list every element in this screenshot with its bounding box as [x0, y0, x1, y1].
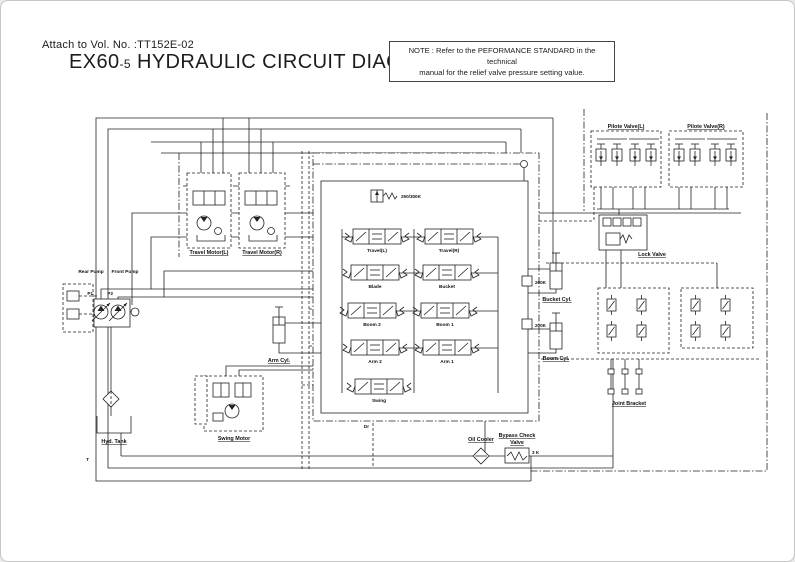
port-t-label: T — [86, 457, 89, 462]
cushion-valve-block-2 — [681, 288, 753, 348]
port-p1-label: P1 — [87, 291, 93, 296]
arm-cylinder-label: Arm Cyl. — [268, 358, 291, 364]
bucket-cylinder-label: Bucket Cyl. — [542, 297, 572, 303]
travel-motor-right-label: Travel Motor(R) — [242, 250, 282, 256]
spool-boom1-label: Boom 1 — [436, 322, 454, 328]
spool-arm1 — [415, 340, 479, 355]
travel-motor-right-symbol — [250, 216, 264, 230]
hydraulic-circuit-diagram: Travel Motor(L) Travel Motor(R) Rear Pum… — [1, 1, 795, 562]
joint-link — [622, 369, 628, 394]
pilot-valve-left-block: Pilote Valve(L) — [591, 124, 661, 187]
rear-pump-label: Rear Pump — [78, 269, 103, 275]
swing-motor-label: Swing Motor — [218, 436, 251, 442]
pilot-valve-right-block: Pilote Valve(R) — [669, 124, 743, 187]
joint-bracket-block: Joint Bracket — [608, 369, 646, 407]
spool-swing-label: Swing — [372, 398, 386, 404]
spool-travel-left-label: Travel(L) — [367, 248, 387, 254]
port-relief-setting-2: 200K — [535, 323, 547, 328]
port-p2-label: P2 — [107, 291, 113, 296]
spool-arm2-label: Arm 2 — [368, 359, 382, 365]
swing-motor-symbol — [225, 404, 239, 418]
pilot-valve-right-label: Pilote Valve(R) — [687, 124, 725, 130]
pilot-valve-left-label: Pilote Valve(L) — [608, 124, 645, 130]
spool-arm2 — [343, 340, 407, 355]
boom-cylinder-label: Boom Cyl. — [543, 356, 570, 362]
spool-arm1-label: Arm 1 — [440, 359, 454, 365]
spool-travel-right — [417, 229, 481, 244]
spool-bucket — [415, 265, 479, 280]
port-dr-label: Dr — [364, 424, 369, 429]
bypass-check-valve-block: Bypass Check Valve 3 K — [499, 433, 540, 463]
hydraulic-tank-block: Hyd. Tank T — [86, 391, 131, 462]
spool-blade-label: Blade — [368, 284, 381, 290]
spool-boom2 — [340, 303, 404, 318]
joint-link — [636, 369, 642, 394]
spool-travel-right-label: Travel(R) — [439, 248, 460, 254]
lock-valve-block: Lock Valve — [599, 215, 666, 258]
bypass-valve-label-1: Bypass Check — [499, 433, 536, 439]
control-valve-block: 250/300K Travel(L) Trave — [313, 153, 547, 429]
front-pump-label: Front Pump — [112, 269, 139, 275]
joint-bracket-label: Joint Bracket — [612, 401, 646, 407]
boom-cylinder-symbol — [550, 313, 562, 349]
spool-blade — [343, 265, 407, 280]
hyd-tank-label: Hyd. Tank — [101, 439, 126, 445]
tank-symbol — [97, 416, 131, 433]
pilot-gear-pump-symbol — [131, 308, 139, 316]
spool-bucket-label: Bucket — [439, 284, 455, 290]
spool-swing — [347, 379, 411, 394]
spool-travel-left — [345, 229, 409, 244]
oil-cooler-block: Oil Cooler — [468, 437, 495, 464]
bypass-valve-rating: 3 K — [532, 450, 540, 455]
swing-motor-block: Swing Motor — [195, 376, 263, 442]
spool-boom1 — [413, 303, 477, 318]
cushion-valve-block-1 — [598, 288, 669, 353]
bypass-valve-label-2: Valve — [510, 440, 524, 446]
port-relief-setting-1: 200K — [535, 280, 547, 285]
oil-cooler-label: Oil Cooler — [468, 437, 495, 443]
travel-motor-left-block: Travel Motor(L) — [187, 173, 231, 256]
pilot-port-gauge-icon — [521, 161, 528, 168]
arm-cylinder-symbol — [273, 307, 285, 343]
travel-motor-left-symbol — [197, 216, 211, 230]
spool-boom2-label: Boom 2 — [363, 322, 381, 328]
travel-motor-right-block: Travel Motor(R) — [239, 173, 285, 256]
main-relief-setting: 250/300K — [401, 194, 422, 199]
travel-motor-left-label: Travel Motor(L) — [190, 250, 229, 256]
pump-unit: Rear Pump Front Pump P1 P2 — [63, 269, 139, 332]
document-page: Attach to Vol. No. :TT152E-02 EX60-5 HYD… — [0, 0, 795, 562]
bucket-cylinder-symbol — [550, 253, 562, 289]
lock-valve-label: Lock Valve — [638, 252, 666, 258]
